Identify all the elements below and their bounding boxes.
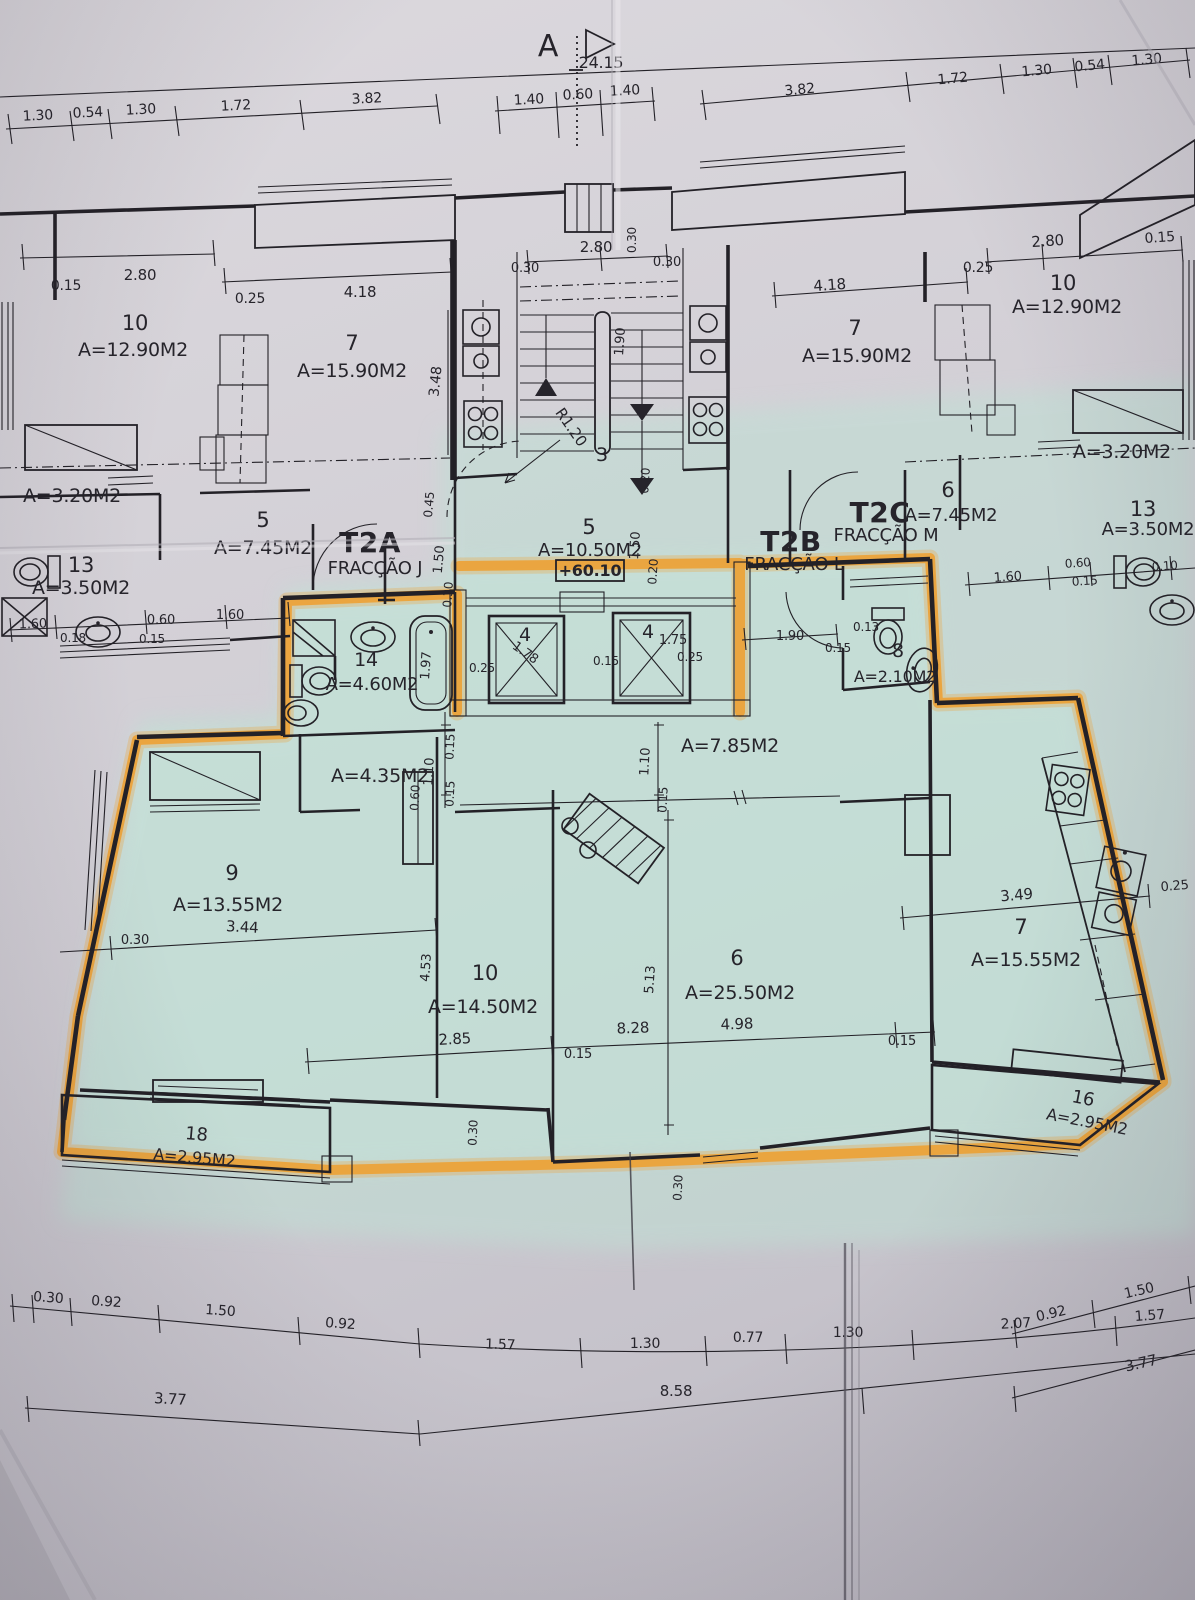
room-area: A=25.50M2 bbox=[685, 982, 795, 1004]
dim: 0.15 bbox=[442, 780, 457, 807]
fraction-name: FRACÇÃO J bbox=[328, 557, 423, 579]
dim: 0.30 bbox=[121, 933, 149, 948]
dim: 1.60 bbox=[993, 569, 1022, 586]
room-number: 7 bbox=[848, 316, 861, 340]
dim: 2.80 bbox=[1031, 231, 1065, 251]
dim: 0.15 bbox=[564, 1047, 592, 1062]
dim: 0.25 bbox=[235, 291, 265, 307]
dim: 1.30 bbox=[22, 107, 53, 125]
dim: 1.57 bbox=[485, 1336, 516, 1353]
room-number: 6 bbox=[730, 946, 743, 970]
fraction-name: FRACÇÃO M bbox=[834, 524, 939, 546]
fraction-code: T2A bbox=[339, 526, 401, 559]
room-area: A=13.55M2 bbox=[173, 894, 283, 916]
dim: 2.80 bbox=[124, 266, 157, 284]
dim: 0.15 bbox=[1071, 573, 1098, 589]
dim: 0.54 bbox=[72, 104, 103, 122]
dim: 0.30 bbox=[33, 1289, 64, 1307]
dim: 0.15 bbox=[442, 733, 457, 760]
room-number: 7 bbox=[1014, 915, 1027, 939]
dim: 0.25 bbox=[1160, 878, 1189, 895]
room-area: A=12.90M2 bbox=[78, 339, 188, 361]
dim: 1.57 bbox=[1134, 1307, 1165, 1325]
room-number: 10 bbox=[472, 961, 498, 985]
dim: 0.25 bbox=[963, 260, 993, 276]
dim: 0.15 bbox=[888, 1034, 916, 1049]
dim: 1.30 bbox=[1021, 62, 1053, 81]
room-area: A=3.50M2 bbox=[1102, 519, 1195, 540]
room-number: 13 bbox=[68, 553, 94, 577]
room-number: 13 bbox=[1130, 497, 1156, 521]
dim: 4.18 bbox=[344, 283, 377, 301]
dim-total: 8.58 bbox=[660, 1382, 693, 1400]
dim: 3.49 bbox=[1000, 885, 1034, 906]
room-number: 7 bbox=[345, 331, 358, 355]
room-number: 14 bbox=[354, 649, 378, 671]
room-area: A=3.50M2 bbox=[32, 577, 130, 599]
dim: 0.60 bbox=[562, 86, 593, 104]
dim: 0.30 bbox=[625, 227, 639, 253]
room-number: 10 bbox=[1050, 271, 1076, 295]
dim: 1.50 bbox=[1123, 1280, 1156, 1302]
room-number: 5 bbox=[582, 515, 595, 539]
dim-total: 3.77 bbox=[1123, 1351, 1159, 1376]
dim: 2.07 bbox=[1000, 1315, 1031, 1333]
room-area: A=3.20M2 bbox=[1073, 441, 1171, 463]
dim: 0.30 bbox=[511, 261, 539, 276]
dim: 0.77 bbox=[733, 1330, 763, 1346]
dim: 0.15 bbox=[1144, 229, 1175, 247]
room-area: A=7.85M2 bbox=[681, 735, 779, 757]
dim: 0.92 bbox=[1035, 1303, 1068, 1325]
room-area: A=12.90M2 bbox=[1012, 296, 1122, 318]
dim-total: 3.77 bbox=[154, 1389, 188, 1409]
dim: 0.15 bbox=[51, 278, 81, 294]
room-area: A=15.90M2 bbox=[802, 345, 912, 367]
dim: 0.60 bbox=[1064, 555, 1091, 571]
dim: 0.18 bbox=[60, 631, 86, 645]
room-area: A=7.45M2 bbox=[905, 505, 998, 526]
dim: 0.30 bbox=[670, 1174, 685, 1201]
section-letter: A bbox=[538, 29, 559, 64]
dim: 0.25 bbox=[677, 650, 703, 664]
dim: 0.92 bbox=[91, 1293, 122, 1311]
dim: 0.54 bbox=[1074, 57, 1106, 76]
room-number: 6 bbox=[941, 478, 954, 502]
dim: 5.13 bbox=[642, 965, 659, 994]
dim: 1.40 bbox=[513, 91, 544, 109]
dim: 1.75 bbox=[659, 633, 687, 648]
dim: 0.30 bbox=[465, 1119, 480, 1146]
room-area: A=4.35M2 bbox=[331, 765, 429, 787]
dim: 4.98 bbox=[720, 1014, 753, 1033]
dim: 3.82 bbox=[784, 81, 816, 100]
dim: 1.72 bbox=[937, 70, 969, 89]
dim: 8.28 bbox=[616, 1018, 649, 1037]
dim: 1.97 bbox=[418, 651, 435, 680]
dim: 4.53 bbox=[418, 953, 435, 982]
dim: 0.10 bbox=[1151, 558, 1178, 574]
dim: 0.60 bbox=[407, 784, 422, 811]
dim: 2.80 bbox=[580, 238, 613, 256]
room-number: 10 bbox=[122, 311, 148, 335]
dim: 0.20 bbox=[645, 558, 661, 585]
dim: 1.10 bbox=[421, 757, 437, 786]
room-number: 3 bbox=[596, 444, 608, 466]
floor-plan-photo: A 24.15 1.30 0.54 1.30 1.72 3.82 1.40 0.… bbox=[0, 0, 1195, 1600]
dim: 1.40 bbox=[609, 82, 640, 100]
room-area: A=3.20M2 bbox=[23, 485, 121, 507]
dim: 3.82 bbox=[351, 90, 382, 108]
dim: 4.18 bbox=[813, 275, 847, 295]
dim: 1.50 bbox=[205, 1302, 236, 1320]
dim: 1.10 bbox=[637, 747, 653, 776]
room-area: A=2.10M2 bbox=[854, 667, 936, 686]
dim: 0.92 bbox=[325, 1315, 356, 1333]
dim: 1.60 bbox=[216, 608, 244, 623]
dim: 0.20 bbox=[637, 467, 653, 494]
fraction-t2a-label: T2A FRACÇÃO J bbox=[328, 526, 423, 579]
room-area: A=15.55M2 bbox=[971, 949, 1081, 971]
dim: 1.50 bbox=[627, 531, 644, 560]
room-number: 16 bbox=[1070, 1086, 1096, 1111]
dim: 1.90 bbox=[612, 327, 629, 356]
room-number: 18 bbox=[184, 1123, 208, 1146]
room-area: A=14.50M2 bbox=[428, 996, 538, 1018]
dimension-chain-bottom: 0.30 0.92 1.50 0.92 1.57 1.30 0.77 1.30 … bbox=[10, 1276, 1195, 1446]
dim: 3.44 bbox=[226, 917, 260, 937]
dim: 0.30 bbox=[653, 255, 681, 270]
dim: 0.60 bbox=[147, 613, 175, 628]
lift-number: 4 bbox=[642, 621, 654, 643]
room-number: 9 bbox=[225, 861, 238, 885]
teal-wash bbox=[60, 380, 1195, 1250]
dim: 0.45 bbox=[421, 491, 437, 518]
dim: 1.50 bbox=[431, 545, 448, 574]
room-area: A=4.60M2 bbox=[326, 674, 419, 695]
room-area: A=15.90M2 bbox=[297, 360, 407, 382]
dim: 1.30 bbox=[630, 1336, 660, 1352]
room-number: 8 bbox=[892, 640, 904, 662]
dim: 1.60 bbox=[19, 617, 48, 633]
dim: 0.15 bbox=[655, 786, 670, 813]
level-marker: +60.10 bbox=[559, 561, 622, 580]
dim: 2.85 bbox=[438, 1029, 472, 1049]
dim: 0.15 bbox=[593, 654, 619, 668]
dim: 1.30 bbox=[125, 101, 156, 119]
dim: 3.48 bbox=[426, 366, 445, 398]
dim: 0.13 bbox=[853, 620, 879, 634]
room-number: 5 bbox=[256, 508, 269, 532]
dim: 0.15 bbox=[139, 632, 165, 646]
dim: 0.25 bbox=[469, 661, 495, 675]
dim: 1.72 bbox=[220, 97, 251, 115]
